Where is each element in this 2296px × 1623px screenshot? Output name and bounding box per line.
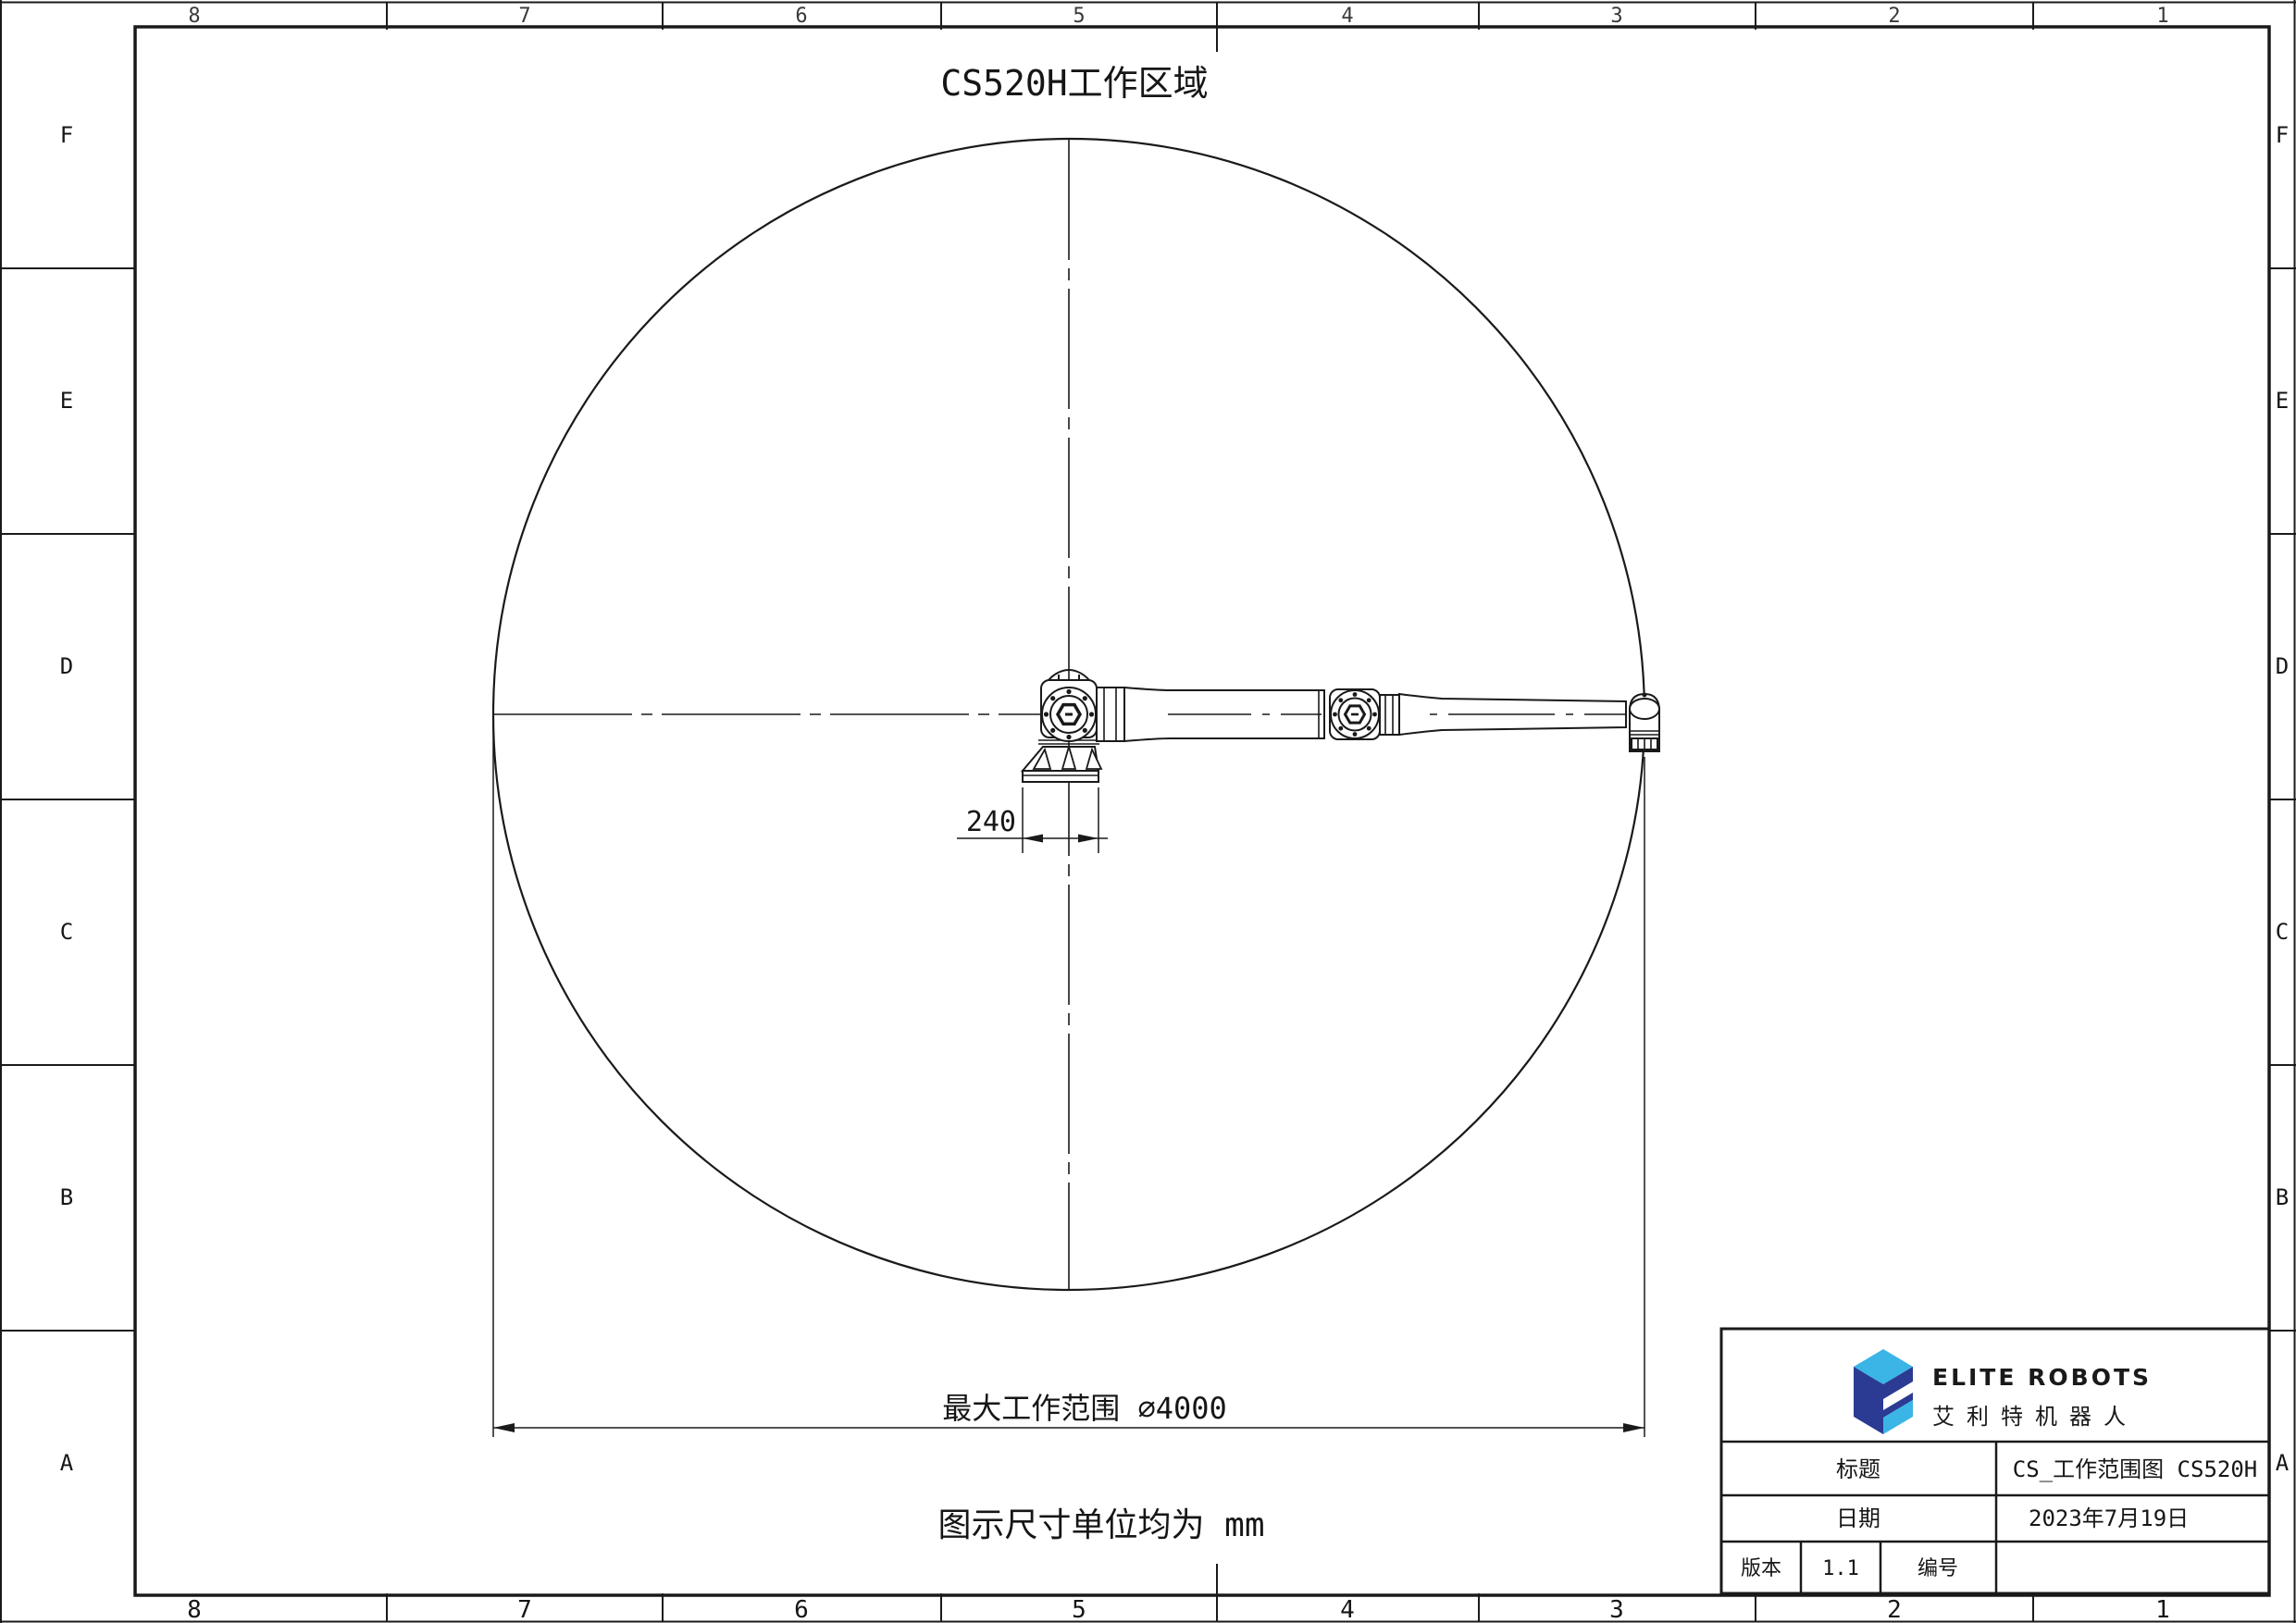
zone-row-label: E [60,388,73,414]
robot-base-plate [1023,771,1098,782]
zone-row-label: C [2276,919,2289,945]
zone-col-label: 4 [1341,5,1353,28]
drawing-title: CS520H工作区域 [940,63,1208,104]
drawing-sheet: 8 7 6 5 4 3 2 1 8 7 6 5 4 3 2 1 F E D C … [0,0,2296,1623]
zone-col-label: 3 [1610,5,1622,28]
right-zone-ticks [2269,268,2296,1331]
work-area-drawing: CS520H工作区域 [493,63,1659,1544]
zone-row-label: E [2276,388,2289,414]
zone-col-label: 2 [1888,5,1900,28]
zone-col-label: 5 [1072,1596,1086,1623]
zone-row-label: F [2276,122,2289,148]
version-label: 版本 [1741,1557,1781,1580]
zone-col-label: 1 [2156,5,2168,28]
zone-labels-bottom: 8 7 6 5 4 3 2 1 [187,1596,2170,1623]
date-value: 2023年7月19日 [2029,1505,2189,1531]
zone-col-label: 4 [1340,1596,1355,1623]
zone-row-label: F [60,122,73,148]
drawing-canvas: 8 7 6 5 4 3 2 1 8 7 6 5 4 3 2 1 F E D C … [0,0,2296,1623]
title-block: ELITE ROBOTS 艾利特机器人 标题 CS_工作范围图 CS520H 日… [1721,1329,2269,1593]
left-zone-ticks [0,268,135,1331]
zone-row-label: D [60,653,73,679]
unit-note: 图示尺寸单位均为 mm [937,1506,1264,1544]
robot-wrist-cap [1630,699,1659,719]
date-label: 日期 [1836,1505,1880,1531]
zone-row-label: C [60,919,73,945]
zone-col-label: 1 [2155,1596,2170,1623]
zone-row-label: A [60,1450,74,1476]
zone-row-label: B [2276,1184,2289,1210]
title-label: 标题 [1836,1456,1880,1482]
zone-row-label: B [60,1184,73,1210]
zone-row-label: D [2276,653,2289,679]
zone-col-label: 8 [187,1596,202,1623]
zone-col-label: 7 [518,5,530,28]
brand-name-en: ELITE ROBOTS [1932,1364,2152,1391]
brand-name-cn: 艾利特机器人 [1932,1404,2138,1430]
number-label: 编号 [1917,1557,1958,1580]
title-value: CS_工作范围图 CS520H [2013,1456,2258,1482]
zone-col-label: 8 [188,5,200,28]
inner-border [135,27,2269,1595]
robot-arm-top-view [1023,670,1659,782]
zone-col-label: 5 [1073,5,1085,28]
zone-col-label: 6 [795,5,807,28]
elite-robots-logo: ELITE ROBOTS 艾利特机器人 [1854,1349,2152,1434]
robot-elbow-neck [1380,695,1399,735]
zone-labels-top: 8 7 6 5 4 3 2 1 [188,5,2168,28]
zone-col-label: 2 [1887,1596,1902,1623]
zone-col-label: 6 [794,1596,809,1623]
robot-base-gussets [1034,747,1101,769]
robot-shoulder-neck [1097,688,1124,741]
version-value: 1.1 [1822,1557,1859,1580]
zone-col-label: 3 [1609,1596,1624,1623]
dimension-base-width: 240 [957,787,1108,853]
dim-base-width-text: 240 [966,806,1016,838]
dim-max-range-text: 最大工作范围 ∅4000 [942,1391,1227,1426]
zone-row-label: A [2276,1450,2290,1476]
zone-col-label: 7 [517,1596,532,1623]
